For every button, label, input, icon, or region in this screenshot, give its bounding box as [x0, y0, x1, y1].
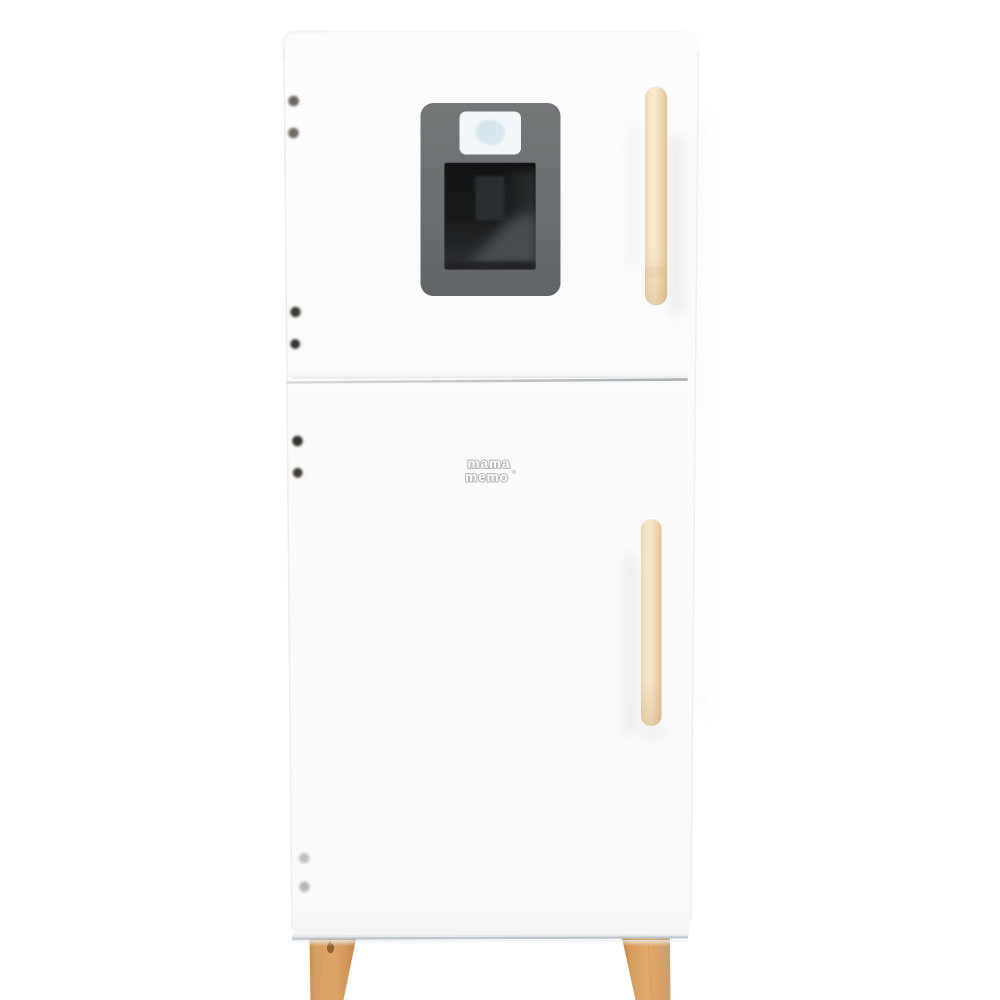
svg-text:memo: memo [465, 470, 509, 485]
svg-text:®: ® [512, 469, 517, 476]
